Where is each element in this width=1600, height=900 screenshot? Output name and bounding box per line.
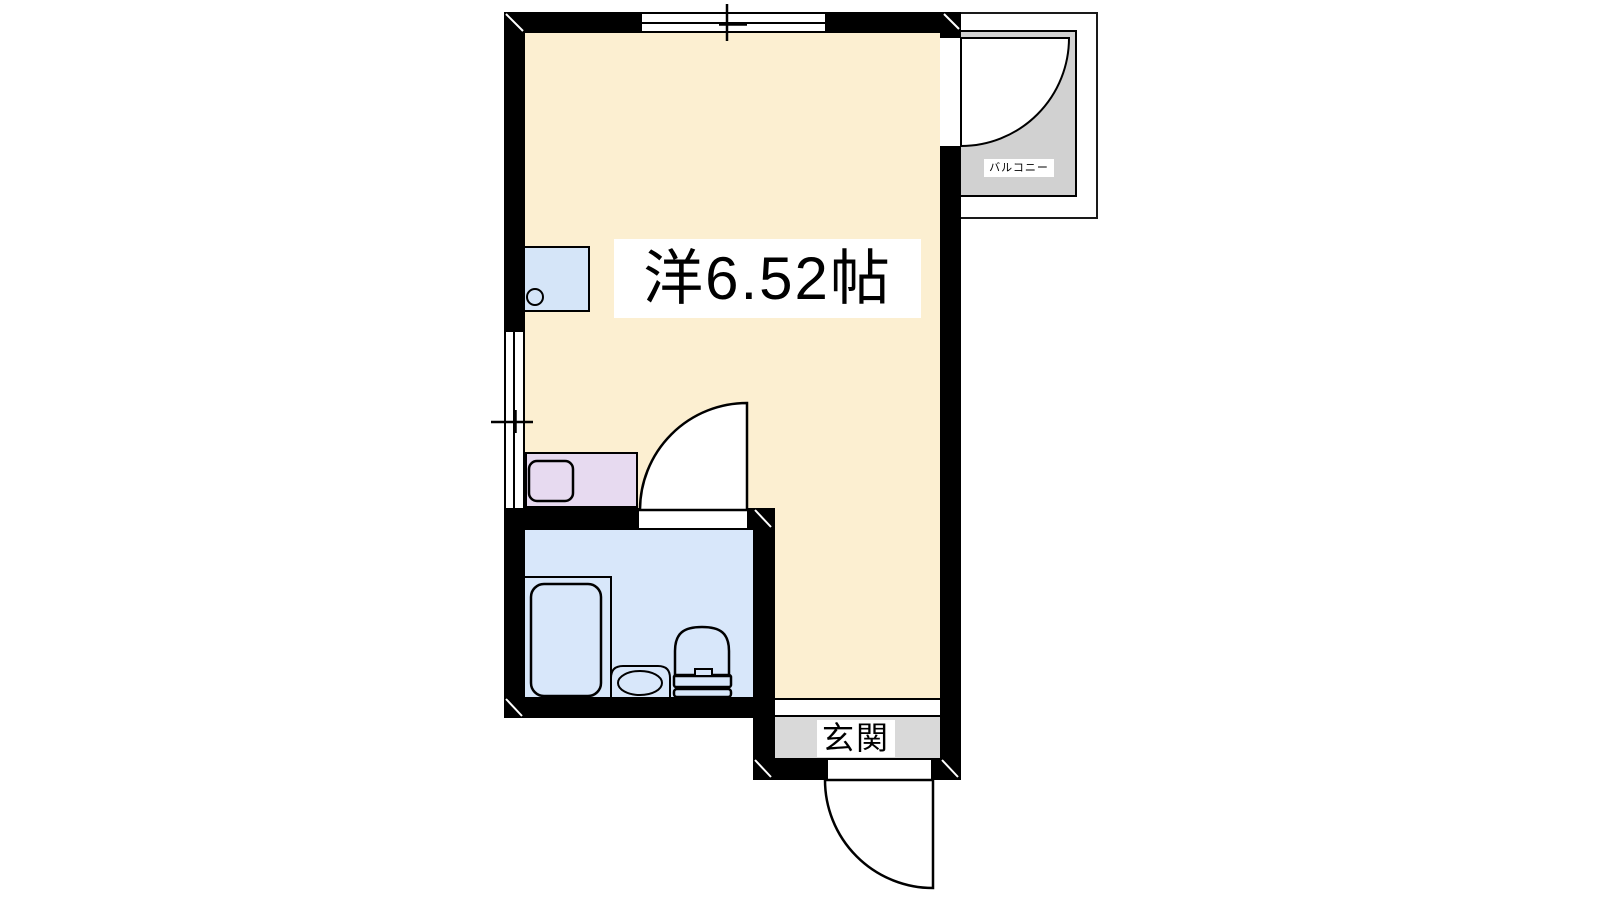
entrance-step xyxy=(775,698,940,717)
bathroom-door-opening xyxy=(639,508,747,530)
kitchen-sink-counter xyxy=(523,246,590,312)
window-top xyxy=(642,12,825,33)
wall-bath-right xyxy=(753,508,775,718)
entrance-label: 玄関 xyxy=(817,720,895,757)
room-size-label: 洋6.52帖 xyxy=(614,239,921,318)
kitchen-counter xyxy=(525,452,638,508)
entrance-door-sill xyxy=(826,758,933,780)
wall-bath-bottom xyxy=(504,697,775,718)
bathroom-floor xyxy=(515,518,765,710)
balcony-label: バルコニー xyxy=(984,159,1054,177)
floorplan-canvas: 洋6.52帖 玄関 バルコニー xyxy=(0,0,1600,900)
window-left xyxy=(504,332,525,508)
entrance-door-swing xyxy=(825,780,933,888)
balcony-door-opening xyxy=(940,36,961,148)
